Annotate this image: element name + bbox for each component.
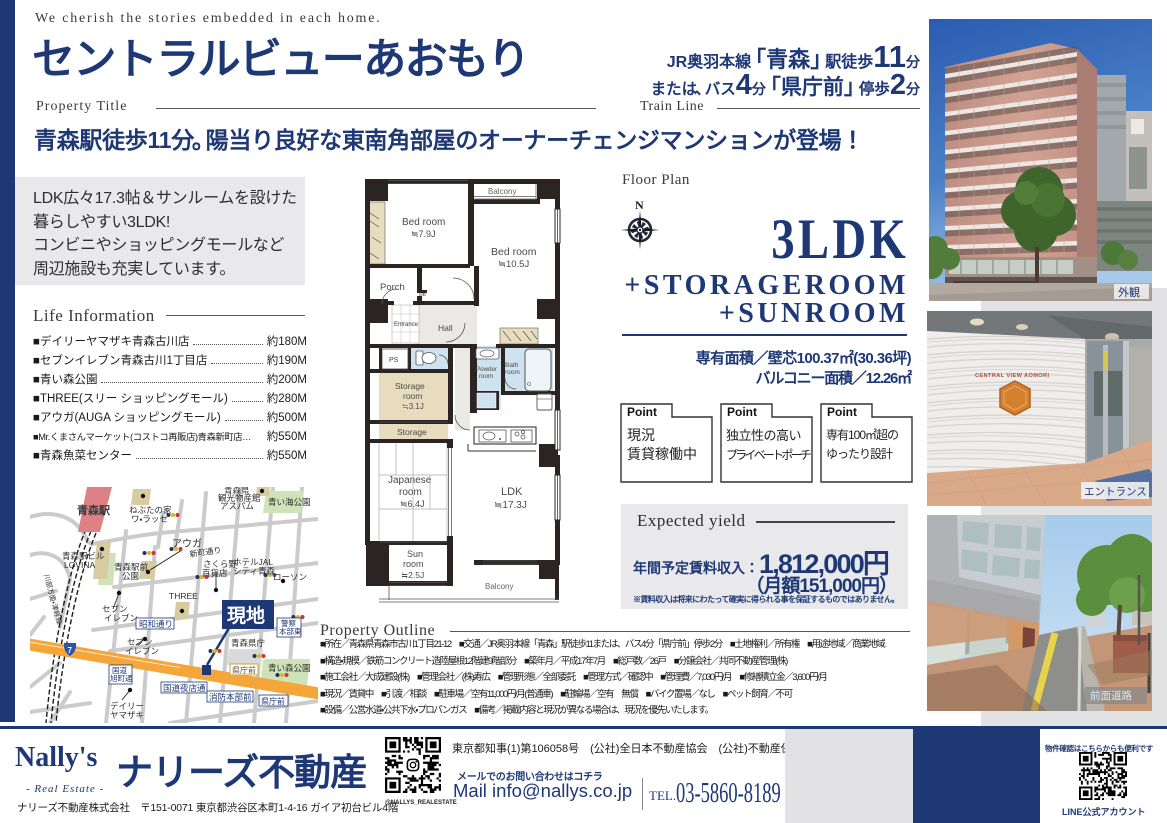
svg-text:Balcony: Balcony: [485, 582, 513, 591]
svg-text:公園: 公園: [122, 571, 139, 581]
svg-text:Bath: Bath: [505, 362, 519, 369]
svg-text:Porch: Porch: [380, 282, 405, 293]
svg-text:≒2.5J: ≒2.5J: [401, 570, 424, 580]
svg-text:≒6.4J: ≒6.4J: [400, 499, 425, 509]
svg-text:≒17.3J: ≒17.3J: [494, 500, 527, 511]
svg-text:エントランス: エントランス: [1084, 486, 1147, 498]
svg-text:現地: 現地: [227, 604, 265, 627]
svg-text:Entrance: Entrance: [394, 322, 419, 328]
svg-text:青森県庁: 青森県庁: [231, 638, 266, 648]
svg-text:Storage: Storage: [397, 427, 427, 437]
svg-text:≒3.1J: ≒3.1J: [402, 402, 424, 411]
svg-text:アスパム: アスパム: [220, 501, 254, 511]
svg-text:Bed room: Bed room: [402, 217, 445, 228]
svg-text:県庁前: 県庁前: [232, 665, 256, 675]
svg-text:国道夜店通: 国道夜店通: [163, 683, 206, 693]
svg-text:N: N: [635, 198, 644, 212]
svg-text:Point: Point: [627, 405, 657, 419]
svg-text:≒10.5J: ≒10.5J: [498, 259, 529, 270]
svg-text:room: room: [403, 391, 422, 401]
svg-text:イレブン: イレブン: [125, 646, 159, 656]
svg-text:旭町通: 旭町通: [110, 673, 133, 683]
svg-text:Sun: Sun: [407, 549, 423, 559]
svg-text:≒7.9J: ≒7.9J: [411, 229, 436, 239]
svg-text:青森駅: 青森駅: [77, 503, 110, 517]
svg-text:Bed room: Bed room: [491, 246, 537, 258]
svg-text:シティ青森: シティ青森: [233, 566, 275, 576]
svg-text:Hall: Hall: [438, 323, 453, 333]
svg-text:THREE: THREE: [169, 591, 198, 601]
svg-text:room: room: [399, 487, 422, 498]
svg-text:ワ・ラッセ: ワ・ラッセ: [131, 514, 168, 524]
svg-text:LDK: LDK: [501, 486, 523, 498]
svg-text:消防本部前: 消防本部前: [209, 692, 252, 702]
svg-text:外観: 外観: [1118, 285, 1140, 299]
svg-text:青い森公園: 青い森公園: [268, 663, 311, 673]
svg-text:7: 7: [68, 646, 73, 655]
svg-text:Storage: Storage: [395, 381, 425, 391]
svg-text:Point: Point: [727, 405, 757, 419]
svg-text:room: room: [479, 373, 493, 380]
svg-text:ヤマザキ: ヤマザキ: [110, 710, 144, 720]
svg-text:県庁前: 県庁前: [261, 696, 285, 706]
svg-text:Japanese: Japanese: [388, 475, 432, 486]
svg-text:MB: MB: [419, 292, 426, 297]
svg-text:百貨店: 百貨店: [202, 568, 228, 578]
svg-text:Powder: Powder: [476, 366, 497, 373]
svg-text:ローソン: ローソン: [273, 572, 307, 582]
svg-text:PS: PS: [389, 357, 399, 364]
svg-text:イレブン: イレブン: [104, 613, 138, 623]
svg-text:room: room: [505, 369, 520, 376]
svg-text:本部東: 本部東: [279, 626, 302, 636]
svg-text:前面道路: 前面道路: [1090, 689, 1132, 702]
svg-text:room: room: [403, 559, 424, 569]
svg-text:CENTRAL VIEW AOMORI: CENTRAL VIEW AOMORI: [975, 373, 1049, 379]
svg-text:青い海公園: 青い海公園: [268, 497, 311, 507]
svg-text:LOVINA: LOVINA: [64, 560, 96, 570]
svg-text:Balcony: Balcony: [488, 187, 516, 196]
svg-text:昭和通り: 昭和通り: [139, 619, 173, 629]
svg-text:Point: Point: [827, 405, 857, 419]
